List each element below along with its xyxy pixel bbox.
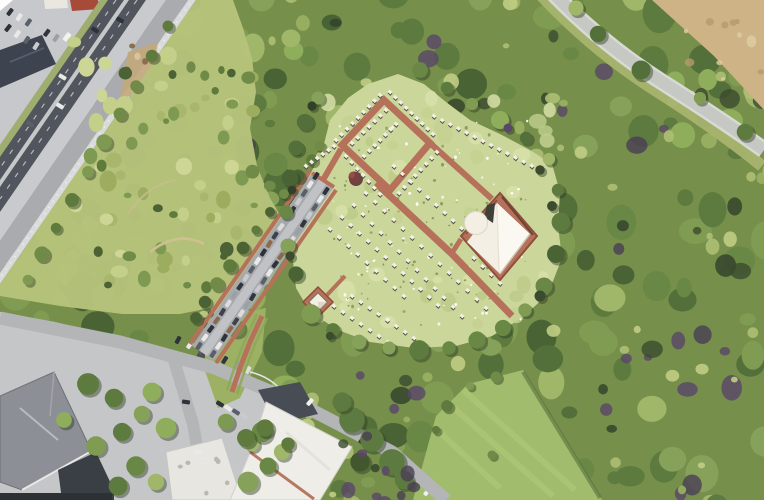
corner-building-white-roof	[44, 0, 68, 9]
aerial-site-rendering	[0, 0, 764, 500]
bottom-dark-roof-strip	[0, 493, 112, 500]
site-plan-overlay-map	[0, 0, 764, 500]
screenshot-root	[0, 0, 764, 500]
junction-tree-highlight	[349, 172, 355, 178]
